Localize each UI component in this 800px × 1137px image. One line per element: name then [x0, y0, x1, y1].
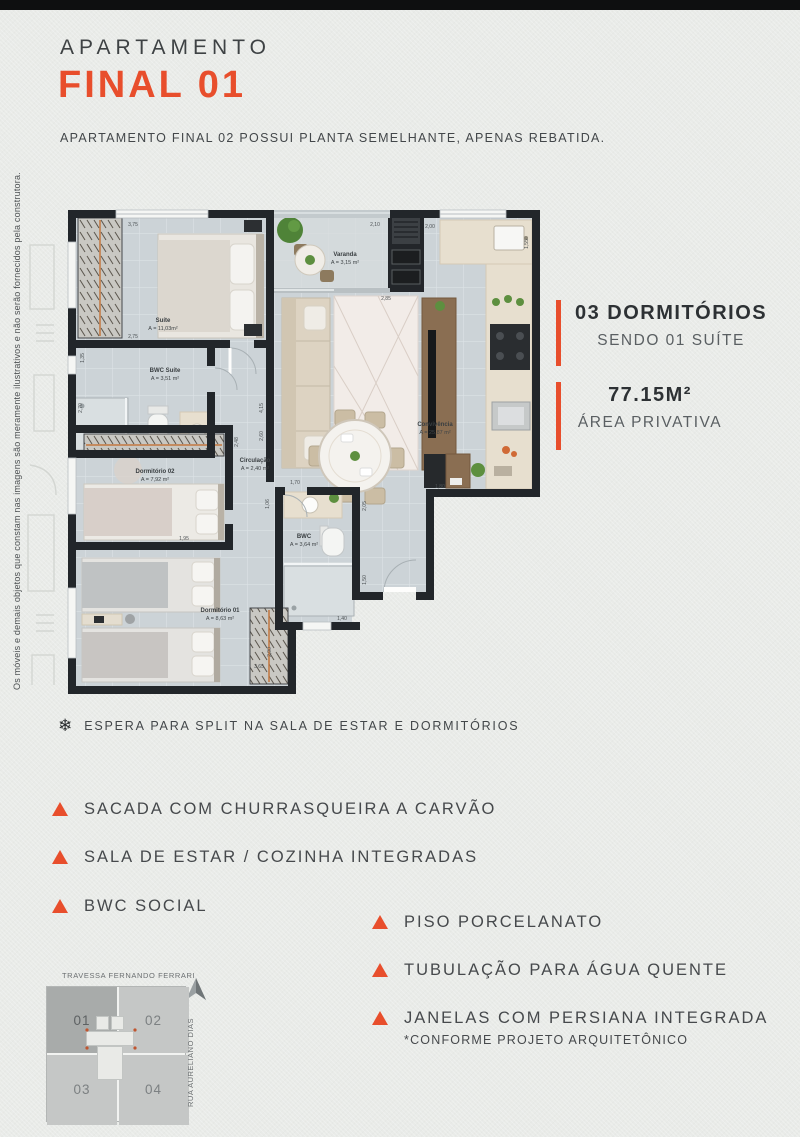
svg-text:1,35: 1,35	[80, 353, 86, 363]
feature-janelas: JANELAS COM PERSIANA INTEGRADA *CONFORME…	[372, 1009, 768, 1047]
svg-text:2,85: 2,85	[381, 296, 391, 302]
feature-bwc-social: BWC SOCIAL	[52, 897, 208, 916]
tv-panel	[422, 298, 456, 470]
triangle-bullet-icon	[52, 802, 68, 816]
churrasqueira-grill	[388, 214, 424, 292]
private-area-label: ÁREA PRIVATIVA	[575, 414, 725, 432]
svg-text:1,50: 1,50	[362, 575, 368, 585]
svg-text:2,10: 2,10	[370, 222, 380, 228]
svg-text:2,05: 2,05	[362, 501, 368, 511]
suite-dresser	[244, 220, 262, 232]
svg-text:1,55: 1,55	[524, 239, 530, 249]
svg-text:A = 8,63 m²: A = 8,63 m²	[206, 616, 234, 622]
svg-text:3,75: 3,75	[128, 222, 138, 228]
split-note: ❄ ESPERA PARA SPLIT NA SALA DE ESTAR E D…	[58, 716, 519, 736]
svg-text:A = 25,87 m²: A = 25,87 m²	[419, 430, 451, 436]
svg-text:1,40: 1,40	[337, 616, 347, 622]
suite-count: SENDO 01 SUÍTE	[575, 332, 767, 350]
room-label: Varanda	[333, 252, 357, 258]
room-label: Convivência	[417, 422, 453, 428]
svg-text:A = 7,92 m²: A = 7,92 m²	[141, 477, 169, 483]
triangle-bullet-icon	[372, 915, 388, 929]
page-subtitle: APARTAMENTO FINAL 02 POSSUI PLANTA SEMEL…	[60, 131, 605, 145]
svg-text:2,60: 2,60	[259, 431, 265, 441]
info-block-area: 77.15M² ÁREA PRIVATIVA	[556, 382, 725, 450]
private-area-value: 77.15M²	[575, 384, 725, 407]
svg-text:1,06: 1,06	[265, 499, 271, 509]
street-label-right: RUA AURELIANO DIAS	[186, 1012, 200, 1107]
dorm01-bed-1	[82, 558, 220, 612]
keyplan-unit-04: 04	[119, 1055, 189, 1125]
svg-text:A = 3,15 m²: A = 3,15 m²	[331, 260, 359, 266]
room-label: Circulação	[240, 458, 271, 464]
svg-text:A = 11,03m²: A = 11,03m²	[148, 326, 178, 332]
svg-text:A = 3,64 m²: A = 3,64 m²	[290, 542, 318, 548]
suite-wardrobe	[78, 218, 122, 338]
svg-text:2,48: 2,48	[234, 437, 240, 447]
top-black-bar	[0, 0, 800, 10]
triangle-bullet-icon	[52, 899, 68, 913]
triangle-bullet-icon	[52, 850, 68, 864]
dorm02-bed	[84, 484, 224, 540]
keyplan-core-stair	[97, 1046, 123, 1080]
svg-text:1,80: 1,80	[435, 484, 445, 490]
info-block-dormitorios: 03 DORMITÓRIOS SENDO 01 SUÍTE	[556, 300, 767, 366]
svg-text:2,70: 2,70	[78, 403, 84, 413]
snowflake-icon: ❄	[58, 716, 72, 736]
triangle-bullet-icon	[372, 963, 388, 977]
page-title-line1: APARTAMENTO	[60, 36, 271, 60]
street-label-top: TRAVESSA FERNANDO FERRARI	[62, 971, 195, 980]
svg-text:A = 2,40 m²: A = 2,40 m²	[241, 466, 269, 472]
suite-desk	[244, 324, 262, 336]
ghost-plan-outlines	[0, 215, 58, 685]
keyplan-core-dots	[84, 1027, 138, 1051]
dormitorios-count: 03 DORMITÓRIOS	[575, 302, 767, 325]
split-note-text: ESPERA PARA SPLIT NA SALA DE ESTAR E DOR…	[84, 719, 519, 733]
svg-text:4,15: 4,15	[259, 403, 265, 413]
varanda-plant	[277, 217, 303, 243]
feature-sala-cozinha: SALA DE ESTAR / COZINHA INTEGRADAS	[52, 848, 478, 867]
room-label: BWC	[297, 534, 312, 540]
svg-text:A = 3,51 m²: A = 3,51 m²	[151, 376, 179, 382]
svg-text:1,70: 1,70	[290, 480, 300, 486]
accent-bar	[556, 300, 561, 366]
page-title-line2: FINAL 01	[58, 64, 246, 107]
accent-bar	[556, 382, 561, 450]
svg-text:3,65: 3,65	[254, 664, 264, 670]
suite-bed	[158, 234, 264, 338]
feature-sacada: SACADA COM CHURRASQUEIRA A CARVÃO	[52, 800, 496, 819]
triangle-bullet-icon	[372, 1011, 388, 1025]
svg-text:1,95: 1,95	[179, 536, 189, 542]
svg-text:2,90: 2,90	[267, 647, 273, 657]
room-label: Dormitório 02	[135, 469, 175, 475]
dorm01-bed-2	[82, 628, 220, 682]
svg-text:2,75: 2,75	[128, 334, 138, 340]
room-label: Suíte	[156, 318, 171, 324]
side-disclaimer-text: Os móveis e demais objetos que constam n…	[12, 205, 28, 690]
room-label: BWC Suíte	[150, 368, 181, 374]
room-label: Dormitório 01	[200, 608, 240, 614]
feature-tubulacao: TUBULAÇÃO PARA ÁGUA QUENTE	[372, 961, 728, 980]
svg-text:2,00: 2,00	[425, 224, 435, 230]
feature-janelas-note: *CONFORME PROJETO ARQUITETÔNICO	[404, 1033, 768, 1047]
floor-plan: Suíte A = 11,03m² Varanda A = 3,15 m² BW…	[58, 206, 545, 698]
feature-piso: PISO PORCELANATO	[372, 913, 603, 932]
